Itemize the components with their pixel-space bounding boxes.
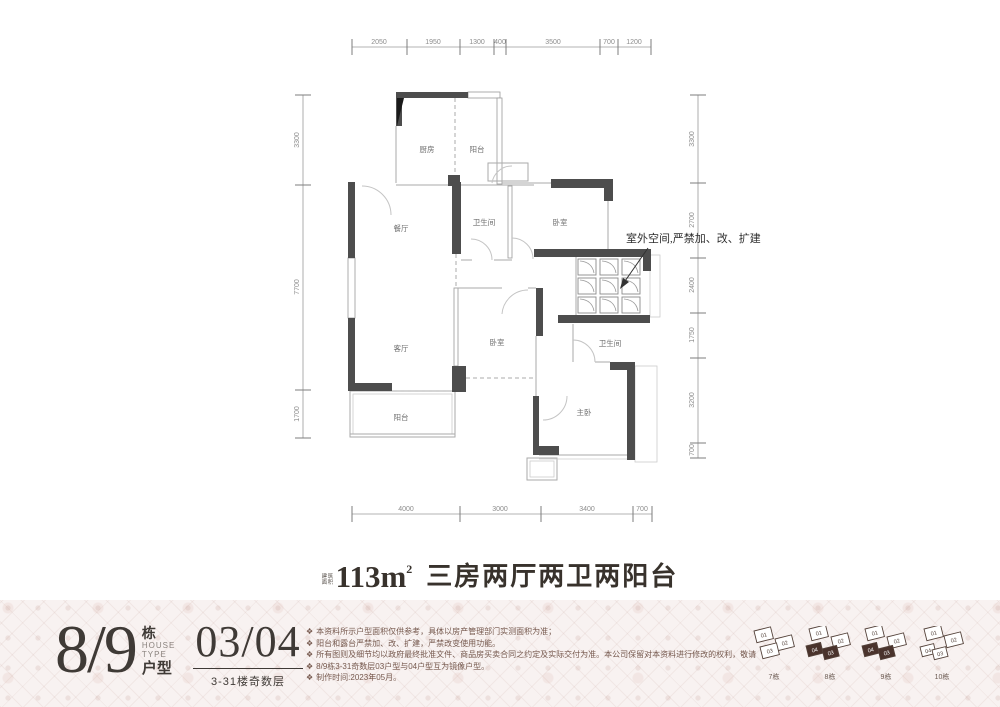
outdoor-grid	[578, 259, 640, 313]
caption-area-prefix: 建筑面积	[322, 574, 334, 586]
building-keyplan-8: 01 02 04 03 8栋	[804, 626, 856, 682]
note-line: ❖本资料所示户型面积仅供参考，具体以房产管理部门实测面积为准；	[306, 626, 756, 638]
note-bullet-icon: ❖	[306, 650, 313, 659]
room-dining: 餐厅	[394, 224, 409, 233]
building-keyplan-label: 7栋	[748, 672, 800, 682]
room-bath1: 卫生间	[473, 217, 496, 227]
caption-sup: 2	[406, 562, 412, 576]
note-bullet-icon: ❖	[306, 627, 313, 636]
note-bullet-icon: ❖	[306, 662, 313, 671]
dim-bottom-4: 700	[636, 506, 648, 513]
room-bath2: 卫生间	[599, 338, 622, 348]
building-keyplan-9: 01 02 04 03 9栋	[860, 626, 912, 682]
room-bedroom1: 卧室	[553, 217, 568, 227]
note-bullet-icon: ❖	[306, 673, 313, 682]
dim-left-2: 7700	[294, 279, 301, 295]
room-master: 主卧	[577, 407, 592, 417]
caption: 建筑面积 113m2 三房两厅两卫两阳台	[0, 540, 1000, 592]
huxing-label: 户型	[142, 660, 175, 677]
footer-band: 8/9 栋 HOUSE TYPE 户型 03/04 3-31楼奇数层 ❖本资料所…	[0, 600, 1000, 707]
room-north-balcony: 阳台	[470, 144, 485, 154]
dim-top-6: 700	[603, 39, 615, 46]
building-key-plans: 01 02 03 7栋 01 02 04 03 8栋 01 02 04 03 9…	[748, 626, 972, 682]
dim-right-2: 2700	[689, 212, 696, 228]
building-keyplan-7: 01 02 03 7栋	[748, 626, 800, 682]
room-south-balcony: 阳台	[394, 412, 409, 422]
building-keyplan-10: 01 02 04 03 10栋	[916, 626, 968, 682]
dim-bottom-3: 3400	[579, 506, 595, 513]
building-label: 栋	[142, 626, 175, 641]
note-bullet-icon: ❖	[306, 639, 313, 648]
dim-top-7: 1200	[626, 39, 642, 46]
dim-right-6: 700	[689, 444, 696, 456]
floors-label: 3-31楼奇数层	[193, 673, 302, 689]
dim-right-5: 3200	[689, 392, 696, 408]
building-keyplan-label: 8栋	[804, 672, 856, 682]
dim-right-4: 1750	[689, 327, 696, 343]
dim-top-4: 400	[494, 39, 506, 46]
building-type-block: 8/9 栋 HOUSE TYPE 户型 03/04 3-31楼奇数层	[55, 610, 303, 689]
floor-plan: 2050 1950 1300 400 3500 700 1200 4000 30…	[0, 0, 1000, 540]
house-label: HOUSE	[142, 641, 175, 650]
room-bedroom2: 卧室	[490, 337, 505, 347]
disclaimer-notes: ❖本资料所示户型面积仅供参考，具体以房产管理部门实测面积为准； ❖阳台和露台严禁…	[306, 626, 756, 684]
dim-left-3: 1700	[294, 406, 301, 422]
note-line: ❖制作时间:2023年05月。	[306, 672, 756, 684]
dim-top-5: 3500	[545, 39, 561, 46]
note-line: ❖阳台和露台严禁加、改、扩建，严禁改变使用功能。	[306, 638, 756, 650]
building-number: 8/9	[55, 610, 136, 688]
caption-description: 三房两厅两卫两阳台	[426, 562, 678, 592]
dim-top-3: 1300	[469, 39, 485, 46]
dim-top-1: 2050	[371, 39, 387, 46]
dim-right-3: 2400	[689, 277, 696, 293]
room-living: 客厅	[394, 343, 409, 353]
type-label: TYPE	[142, 650, 175, 659]
annotation-text: 室外空间,严禁加、改、扩建	[626, 231, 761, 245]
note-line: ❖8/9栋3-31奇数层03户型与04户型互为镜像户型。	[306, 661, 756, 673]
unit-numbers: 03/04	[193, 618, 302, 669]
door-arcs	[362, 166, 595, 420]
note-line: ❖所有图则及细节均以政府最终批准文件、商品房买卖合同之约定及实际交付为准。本公司…	[306, 649, 756, 661]
building-keyplan-label: 10栋	[916, 672, 968, 682]
dim-bottom-2: 3000	[492, 506, 508, 513]
room-kitchen: 厨房	[420, 144, 435, 154]
dim-top-2: 1950	[425, 39, 441, 46]
dim-left-1: 3300	[294, 132, 301, 148]
dim-right-1: 3300	[689, 131, 696, 147]
building-keyplan-label: 9栋	[860, 672, 912, 682]
caption-area-value: 113m2	[336, 554, 413, 592]
dim-bottom-1: 4000	[398, 506, 414, 513]
